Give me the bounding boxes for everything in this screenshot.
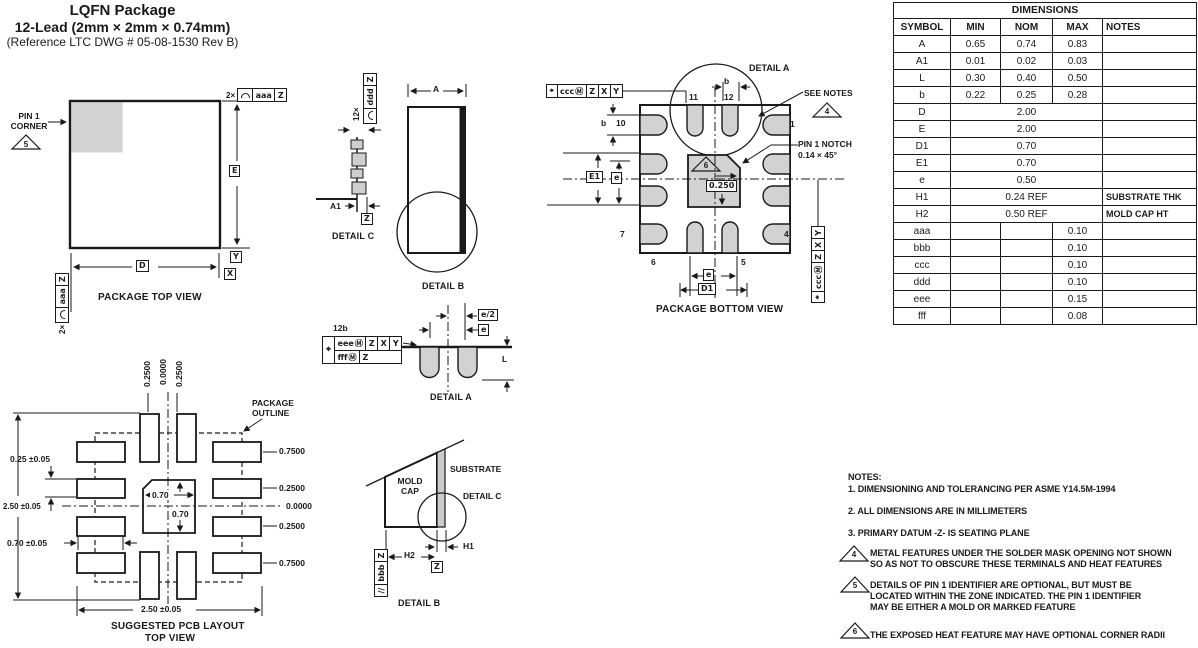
cell: 2.00 <box>951 104 1103 121</box>
pin-5-label: 5 <box>741 257 746 267</box>
substrate-edge <box>460 108 465 252</box>
cell: 0.40 <box>1001 70 1053 87</box>
mmc-modifier-icon: Ⓜ <box>349 352 357 363</box>
cell <box>1001 308 1053 325</box>
cell <box>1103 53 1197 70</box>
cell <box>1103 172 1197 189</box>
bottom-view-fcf-right: ⌖ cccⓂ Z X Y <box>811 226 825 303</box>
cell <box>951 274 1001 291</box>
fcf-tolerance: aaa <box>252 89 274 101</box>
mold-label-line2: CAP <box>392 486 428 496</box>
note-item: 1. DIMENSIONING AND TOLERANCING PER ASME… <box>848 484 1115 494</box>
table-row: bbb0.10 <box>894 240 1197 257</box>
fcf-datum: Z <box>586 85 598 97</box>
pin1-label-line2: CORNER <box>4 121 54 131</box>
cell <box>1103 155 1197 172</box>
detail-b-lower-caption: DETAIL B <box>398 597 440 609</box>
detail-c-fcf: ddd Z <box>363 73 377 124</box>
dim-H1: H1 <box>463 541 474 551</box>
note-item-flagged: LOCATED WITHIN THE ZONE INDICATED. THE P… <box>870 591 1141 601</box>
fcf-tolerance: fff <box>338 353 348 362</box>
datum-Z: Z <box>431 561 443 573</box>
pcb-layout-linework <box>13 392 283 616</box>
cell: ddd <box>894 274 951 291</box>
dim-pad-width: 0.70 ±0.05 <box>7 538 47 548</box>
drawing-reference: (Reference LTC DWG # 05-08-1530 Rev B) <box>0 35 245 49</box>
cell: 0.24 REF <box>951 189 1103 206</box>
title-block: LQFN Package 12-Lead (2mm × 2mm × 0.74mm… <box>0 2 245 49</box>
cell: H1 <box>894 189 951 206</box>
pad-9 <box>640 154 667 174</box>
table-row: E10.70 <box>894 155 1197 172</box>
package-drawing: LQFN Package 12-Lead (2mm × 2mm × 0.74mm… <box>0 0 1198 648</box>
cell: 0.10 <box>1053 257 1103 274</box>
datum-Z: Z <box>361 213 373 225</box>
detail-b-fcf: // bbb Z <box>374 549 388 597</box>
cell <box>1001 240 1053 257</box>
terminal <box>420 347 439 378</box>
pad-2 <box>763 154 790 174</box>
cell <box>951 308 1001 325</box>
pad-12 <box>722 105 738 136</box>
pcb-top-offset: 0.2500 <box>174 361 184 387</box>
pcb-caption-line2: TOP VIEW <box>145 633 195 645</box>
col-header: NOTES <box>1103 19 1197 36</box>
note6-ref: 6 <box>853 627 857 636</box>
table-row: eee0.15 <box>894 291 1197 308</box>
dim-A: A <box>433 84 439 94</box>
cell: L <box>894 70 951 87</box>
fcf-tolerance: ddd <box>364 86 376 109</box>
cell <box>1103 308 1197 325</box>
lead <box>352 153 366 166</box>
pcb-pad <box>213 553 261 573</box>
datum-X: X <box>224 268 236 280</box>
dim-e-bottom: e <box>703 269 714 281</box>
cell: 0.50 REF <box>951 206 1103 223</box>
pcb-pad <box>140 552 159 599</box>
profile-surface-icon <box>368 112 373 121</box>
cell: D1 <box>894 138 951 155</box>
cell <box>1103 223 1197 240</box>
note-item-flagged: THE EXPOSED HEAT FEATURE MAY HAVE OPTION… <box>870 630 1165 640</box>
notes-heading: NOTES: <box>848 472 881 482</box>
fcf-datum: Z <box>274 89 286 101</box>
mmc-modifier-icon: Ⓜ <box>575 86 583 97</box>
detail-a-fcf: ⌖ eeeⓂ Z X Y fffⓂ Z <box>322 336 402 364</box>
col-header: MAX <box>1053 19 1103 36</box>
note6-ref: 6 <box>704 161 708 170</box>
note4-ref: 4 <box>852 550 856 559</box>
lead <box>351 140 363 149</box>
fcf-count: 2× <box>226 91 235 100</box>
cell <box>1103 138 1197 155</box>
pad-1 <box>763 115 790 135</box>
mmc-modifier-icon: Ⓜ <box>813 266 824 274</box>
detail-a-caption: DETAIL A <box>430 391 472 403</box>
cell <box>1103 274 1197 291</box>
fcf-tolerance: ccc <box>814 275 823 289</box>
table-row: fff0.08 <box>894 308 1197 325</box>
dim-H2: H2 <box>404 550 415 560</box>
package-outline-label: PACKAGE OUTLINE <box>252 398 294 418</box>
cell <box>1103 291 1197 308</box>
cell: A1 <box>894 53 951 70</box>
col-header: NOM <box>1001 19 1053 36</box>
cell <box>1001 223 1053 240</box>
callout-12b: 12b <box>333 323 348 333</box>
dim-span-horizontal: 2.50 ±0.05 <box>139 604 183 614</box>
cell: E1 <box>894 155 951 172</box>
pin-7-label: 7 <box>620 229 625 239</box>
cell <box>951 223 1001 240</box>
note-item-flagged: SO AS NOT TO OBSCURE THESE TERMINALS AND… <box>870 559 1162 569</box>
cell: 0.30 <box>951 70 1001 87</box>
note5-ref: 5 <box>24 140 28 149</box>
profile-surface-icon <box>60 310 65 319</box>
datum-Y: Y <box>230 251 242 263</box>
cell: 0.01 <box>951 53 1001 70</box>
pcb-top-offset: 0.0000 <box>158 359 168 385</box>
fcf-datum: X <box>598 85 610 97</box>
pcb-pad <box>77 517 125 536</box>
pcb-row-offset: 0.7500 <box>279 446 305 456</box>
detail-a-ref-label: DETAIL A <box>749 63 789 73</box>
notes-triangle-icons <box>840 546 869 638</box>
table-row: E2.00 <box>894 121 1197 138</box>
detail-b-linework <box>366 440 466 562</box>
dim-E1: E1 <box>586 171 603 183</box>
fcf-datum: Z <box>56 274 68 286</box>
pad-10 <box>640 115 667 135</box>
fcf-count: 12× <box>352 107 362 121</box>
side-view-linework <box>397 84 477 272</box>
lead <box>351 169 363 178</box>
table-row: D10.70 <box>894 138 1197 155</box>
cell: 2.00 <box>951 121 1103 138</box>
cell: D <box>894 104 951 121</box>
dim-e-half: e/2 <box>478 309 498 321</box>
pin-4-label: 4 <box>784 229 789 239</box>
pcb-caption-line1: SUGGESTED PCB LAYOUT <box>111 621 245 633</box>
dimensions-table: DIMENSIONS SYMBOL MIN NOM MAX NOTES A0.6… <box>893 2 1197 325</box>
dim-A1: A1 <box>330 201 341 211</box>
pcb-pad <box>77 442 125 462</box>
cell: 0.70 <box>951 138 1103 155</box>
dim-b-left: b <box>601 118 606 128</box>
mold-label-line1: MOLD <box>392 476 428 486</box>
table-row: D2.00 <box>894 104 1197 121</box>
pcb-pad <box>213 479 261 498</box>
pcb-pad <box>140 414 159 462</box>
cell: 0.10 <box>1053 223 1103 240</box>
dim-e: e <box>478 324 489 336</box>
cell: SUBSTRATE THK <box>1103 189 1197 206</box>
detail-c-ref-label: DETAIL C <box>463 491 501 501</box>
cell: 0.50 <box>1053 70 1103 87</box>
dim-b-top: b <box>724 76 729 86</box>
pcb-row-offset: 0.7500 <box>279 558 305 568</box>
fcf-count: 2× <box>58 325 67 334</box>
pcb-row-offset: 0.2500 <box>279 483 305 493</box>
fcf-tolerance: eee <box>338 339 354 348</box>
dim-L: L <box>502 354 507 364</box>
mmc-modifier-icon: Ⓜ <box>355 338 363 349</box>
lead <box>352 182 366 194</box>
cell: 0.50 <box>951 172 1103 189</box>
pin-12-label: 12 <box>724 92 733 102</box>
position-symbol-icon: ⌖ <box>547 85 557 97</box>
fcf-datum: Z <box>812 251 824 263</box>
table-row: ccc0.10 <box>894 257 1197 274</box>
package-subtitle: 12-Lead (2mm × 2mm × 0.74mm) <box>0 19 245 35</box>
detail-c-linework <box>316 130 381 213</box>
fcf-tolerance: aaa <box>56 286 68 308</box>
fcf-datum: Y <box>610 85 622 97</box>
position-symbol-icon: ⌖ <box>323 337 335 363</box>
cell: 0.02 <box>1001 53 1053 70</box>
note5-ref: 5 <box>853 581 857 590</box>
profile-surface-icon <box>241 93 250 98</box>
pad-8 <box>640 186 667 206</box>
pcb-pad <box>213 517 261 536</box>
cell: 0.22 <box>951 87 1001 104</box>
cell: 0.70 <box>951 155 1103 172</box>
pin1-corner-label: PIN 1 CORNER <box>4 111 54 131</box>
fcf-datum: Y <box>812 227 824 239</box>
cell <box>1103 36 1197 53</box>
cell: 0.65 <box>951 36 1001 53</box>
cell <box>1103 87 1197 104</box>
table-row: b0.220.250.28 <box>894 87 1197 104</box>
cell: A <box>894 36 951 53</box>
cell: MOLD CAP HT <box>1103 206 1197 223</box>
dim-span-vertical: 2.50 ±0.05 <box>1 502 43 512</box>
table-row: e0.50 <box>894 172 1197 189</box>
top-view-linework <box>12 101 250 312</box>
pad-11 <box>687 105 703 136</box>
cell: 0.03 <box>1053 53 1103 70</box>
cell: aaa <box>894 223 951 240</box>
pad-3 <box>763 186 790 206</box>
cell: bbb <box>894 240 951 257</box>
cell: eee <box>894 291 951 308</box>
pcb-pad <box>77 553 125 573</box>
pcb-row-offset: 0.2500 <box>279 521 305 531</box>
pcb-pad <box>77 479 125 498</box>
dim-D: D <box>136 260 149 272</box>
fcf-datum: Z <box>365 337 377 350</box>
cell: H2 <box>894 206 951 223</box>
cell: E <box>894 121 951 138</box>
package-title: LQFN Package <box>0 2 245 19</box>
table-row: A10.010.020.03 <box>894 53 1197 70</box>
cell: 0.08 <box>1053 308 1103 325</box>
cell <box>1103 121 1197 138</box>
parallelism-symbol-icon: // <box>375 585 387 596</box>
pcb-row-offset: 0.0000 <box>286 501 312 511</box>
note-item: 3. PRIMARY DATUM -Z- IS SEATING PLANE <box>848 528 1029 538</box>
note-item-flagged: METAL FEATURES UNDER THE SOLDER MASK OPE… <box>870 548 1172 558</box>
note4-ref: 4 <box>825 107 829 116</box>
dim-E: E <box>229 165 240 177</box>
table-title: DIMENSIONS <box>894 3 1197 19</box>
fcf-datum: X <box>377 337 389 350</box>
substrate-shape <box>437 449 445 527</box>
fcf-tolerance: ccc <box>560 87 574 96</box>
table-row: A0.650.740.83 <box>894 36 1197 53</box>
dim-D1: D1 <box>698 283 716 295</box>
fcf-tolerance: bbb <box>375 562 387 585</box>
see-notes-label: SEE NOTES <box>804 88 853 98</box>
substrate-label: SUBSTRATE <box>450 464 501 474</box>
pin1-notch-label: PIN 1 NOTCH <box>798 139 852 149</box>
cell <box>1001 291 1053 308</box>
terminal <box>458 347 477 378</box>
cell <box>1103 104 1197 121</box>
pin1-label-line1: PIN 1 <box>4 111 54 121</box>
cell <box>951 291 1001 308</box>
pin-10-label: 10 <box>616 118 625 128</box>
detail-c-caption: DETAIL C <box>332 230 374 242</box>
cell <box>951 240 1001 257</box>
pcb-pad <box>177 414 196 462</box>
table-row: aaa0.10 <box>894 223 1197 240</box>
cell <box>951 257 1001 274</box>
cell: 0.83 <box>1053 36 1103 53</box>
cell: 0.28 <box>1053 87 1103 104</box>
cell: ccc <box>894 257 951 274</box>
cell <box>1001 274 1053 291</box>
cell: b <box>894 87 951 104</box>
outline-label-line2: OUTLINE <box>252 408 294 418</box>
cell <box>1103 240 1197 257</box>
fcf-datum: Z <box>364 74 376 86</box>
cell: 0.10 <box>1053 274 1103 291</box>
note-item: 2. ALL DIMENSIONS ARE IN MILLIMETERS <box>848 506 1027 516</box>
pin-1-label: 1 <box>790 119 795 129</box>
bottom-view-fcf: ⌖ cccⓂ Z X Y <box>546 84 623 98</box>
table-row: ddd0.10 <box>894 274 1197 291</box>
package-side-body <box>408 107 465 253</box>
note-item-flagged: MAY BE EITHER A MOLD OR MARKED FEATURE <box>870 602 1075 612</box>
cell: 0.25 <box>1001 87 1053 104</box>
cell: e <box>894 172 951 189</box>
top-view-fcf-left: 2× aaa Z <box>55 273 69 334</box>
position-symbol-icon: ⌖ <box>812 292 824 302</box>
cell: fff <box>894 308 951 325</box>
detail-b-caption: DETAIL B <box>422 280 464 292</box>
pin1-notch-dim: 0.14 × 45° <box>798 150 837 160</box>
pin-6-label: 6 <box>651 257 656 267</box>
note-item-flagged: DETAILS OF PIN 1 IDENTIFIER ARE OPTIONAL… <box>870 580 1132 590</box>
center-pad-width: 0.70 <box>150 490 171 500</box>
fcf-datum: Z <box>359 351 371 363</box>
bottom-view-caption: PACKAGE BOTTOM VIEW <box>656 304 783 316</box>
table-row: H10.24 REFSUBSTRATE THK <box>894 189 1197 206</box>
col-header: SYMBOL <box>894 19 951 36</box>
center-pad-height: 0.70 <box>170 509 191 519</box>
cell: 0.15 <box>1053 291 1103 308</box>
pin-11-label: 11 <box>689 92 698 102</box>
cell: 0.74 <box>1001 36 1053 53</box>
cell <box>1103 257 1197 274</box>
cell <box>1001 257 1053 274</box>
pcb-pad <box>213 442 261 462</box>
table-row: L0.300.400.50 <box>894 70 1197 87</box>
fcf-datum: X <box>812 239 824 251</box>
col-header: MIN <box>951 19 1001 36</box>
pcb-top-offset: 0.2500 <box>142 361 152 387</box>
pad-offset-dim: 0.250 <box>706 180 737 192</box>
cell <box>1103 70 1197 87</box>
pcb-pad <box>177 552 196 599</box>
fcf-datum: Y <box>389 337 401 350</box>
top-view-fcf: 2× aaa Z <box>226 88 287 102</box>
pad-5 <box>722 222 738 253</box>
dim-e-side: e <box>611 172 622 184</box>
outline-label-line1: PACKAGE <box>252 398 294 408</box>
pin1-corner-shade <box>72 103 123 153</box>
pad-6 <box>687 222 703 253</box>
pad-7 <box>640 224 667 244</box>
top-view-caption: PACKAGE TOP VIEW <box>98 292 202 304</box>
fcf-datum: Z <box>375 550 387 562</box>
dim-pad-height: 0.25 ±0.05 <box>10 454 50 464</box>
mold-cap-label: MOLD CAP <box>392 476 428 496</box>
cell: 0.10 <box>1053 240 1103 257</box>
table-row: H20.50 REFMOLD CAP HT <box>894 206 1197 223</box>
